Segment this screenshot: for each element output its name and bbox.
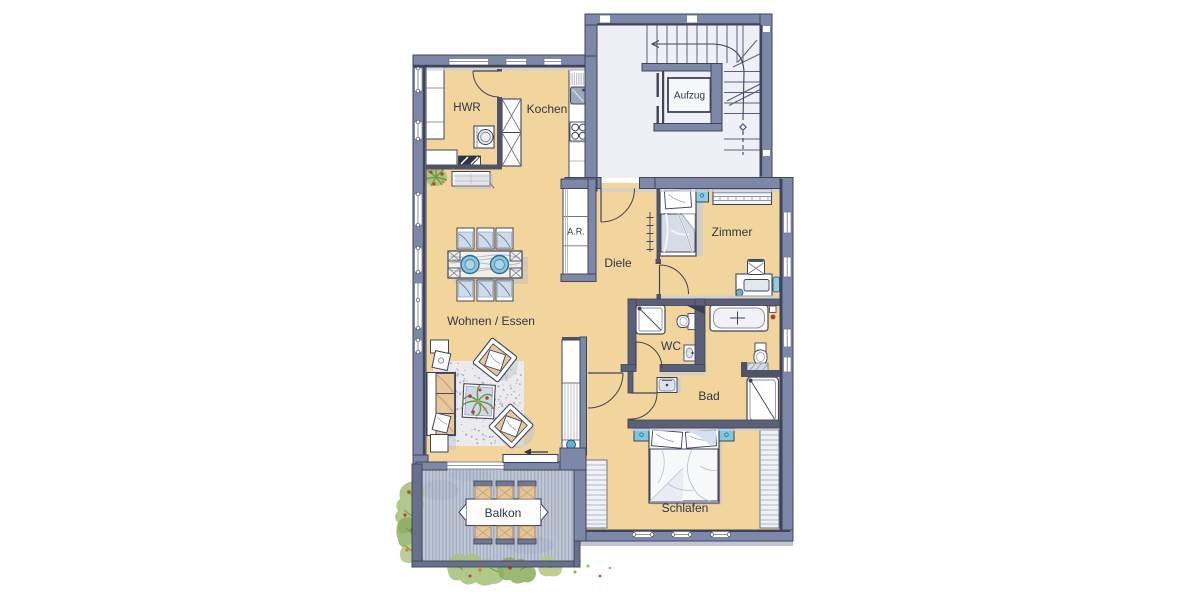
svg-text:Kochen: Kochen xyxy=(527,102,568,116)
svg-text:Zimmer: Zimmer xyxy=(712,225,753,239)
svg-text:Balkon: Balkon xyxy=(485,506,522,520)
svg-text:Aufzug: Aufzug xyxy=(674,91,705,102)
svg-text:HWR: HWR xyxy=(453,102,480,114)
svg-text:Bad: Bad xyxy=(698,389,719,403)
svg-text:Wohnen / Essen: Wohnen / Essen xyxy=(447,314,535,328)
svg-text:A.R.: A.R. xyxy=(567,227,585,237)
svg-text:Schlafen: Schlafen xyxy=(662,501,709,515)
svg-text:Diele: Diele xyxy=(604,256,632,270)
svg-text:WC: WC xyxy=(661,339,681,353)
